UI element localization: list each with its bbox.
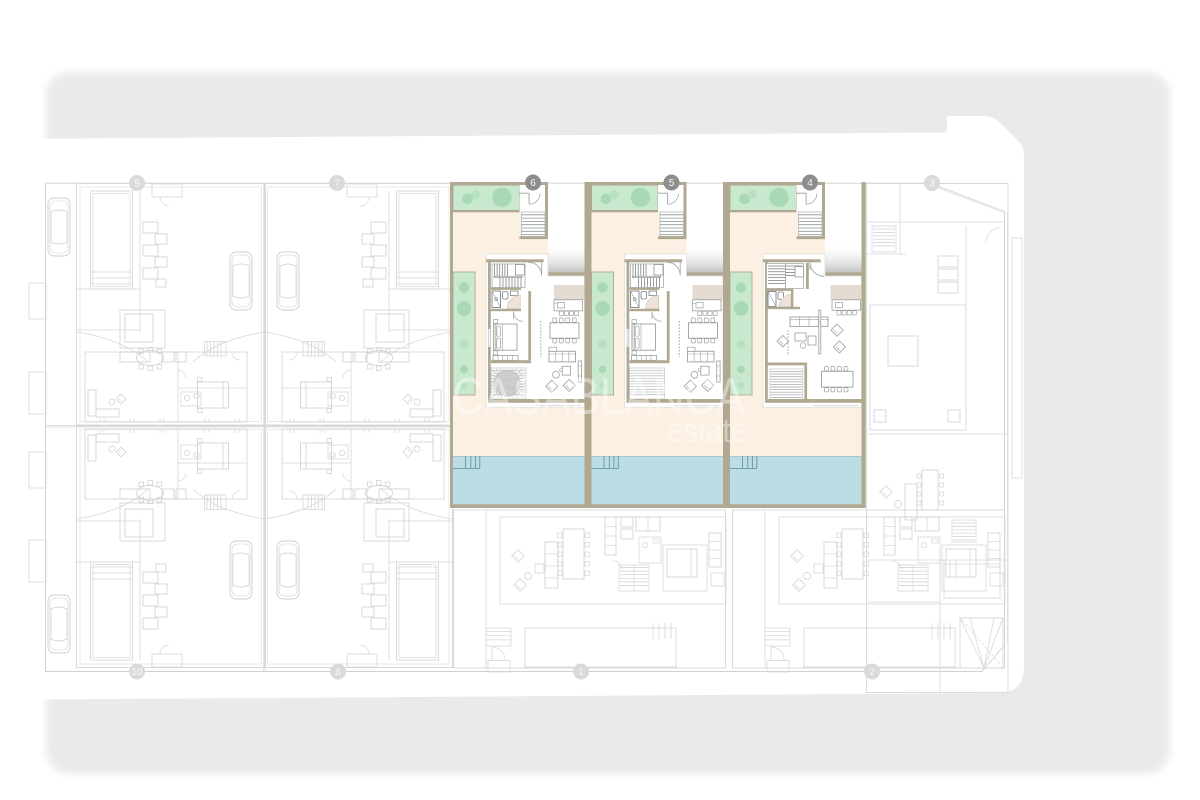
svg-text:10: 10 (131, 667, 143, 678)
svg-text:4: 4 (807, 178, 813, 189)
svg-text:1: 1 (578, 667, 584, 678)
svg-text:estate: estate (667, 412, 747, 450)
svg-text:8: 8 (335, 667, 341, 678)
svg-text:9: 9 (134, 178, 140, 189)
svg-text:7: 7 (334, 178, 340, 189)
svg-text:3: 3 (929, 178, 935, 189)
svg-text:5: 5 (669, 178, 675, 189)
svg-text:6: 6 (530, 178, 536, 189)
svg-text:2: 2 (869, 667, 875, 678)
